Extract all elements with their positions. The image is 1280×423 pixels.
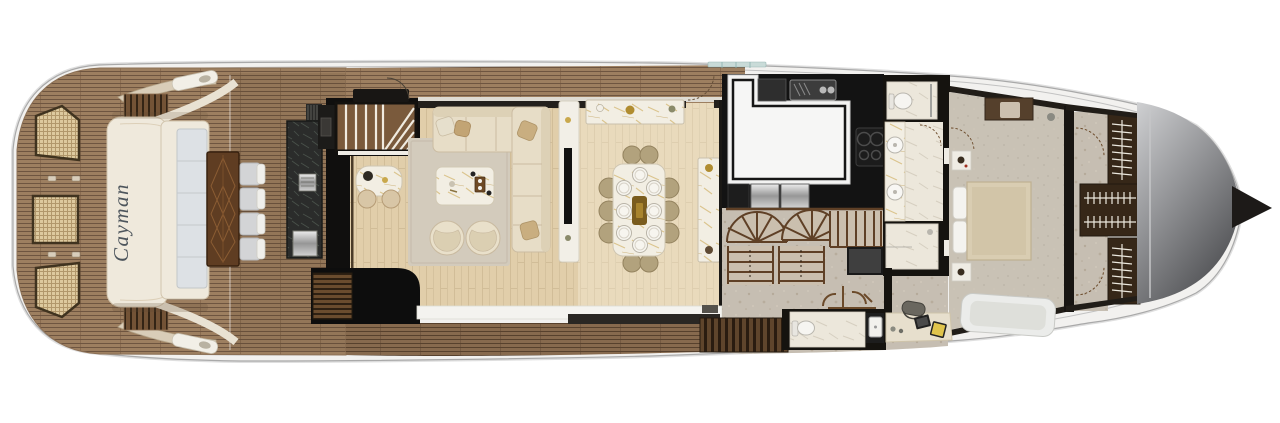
svg-text:Cayman: Cayman	[109, 183, 133, 262]
